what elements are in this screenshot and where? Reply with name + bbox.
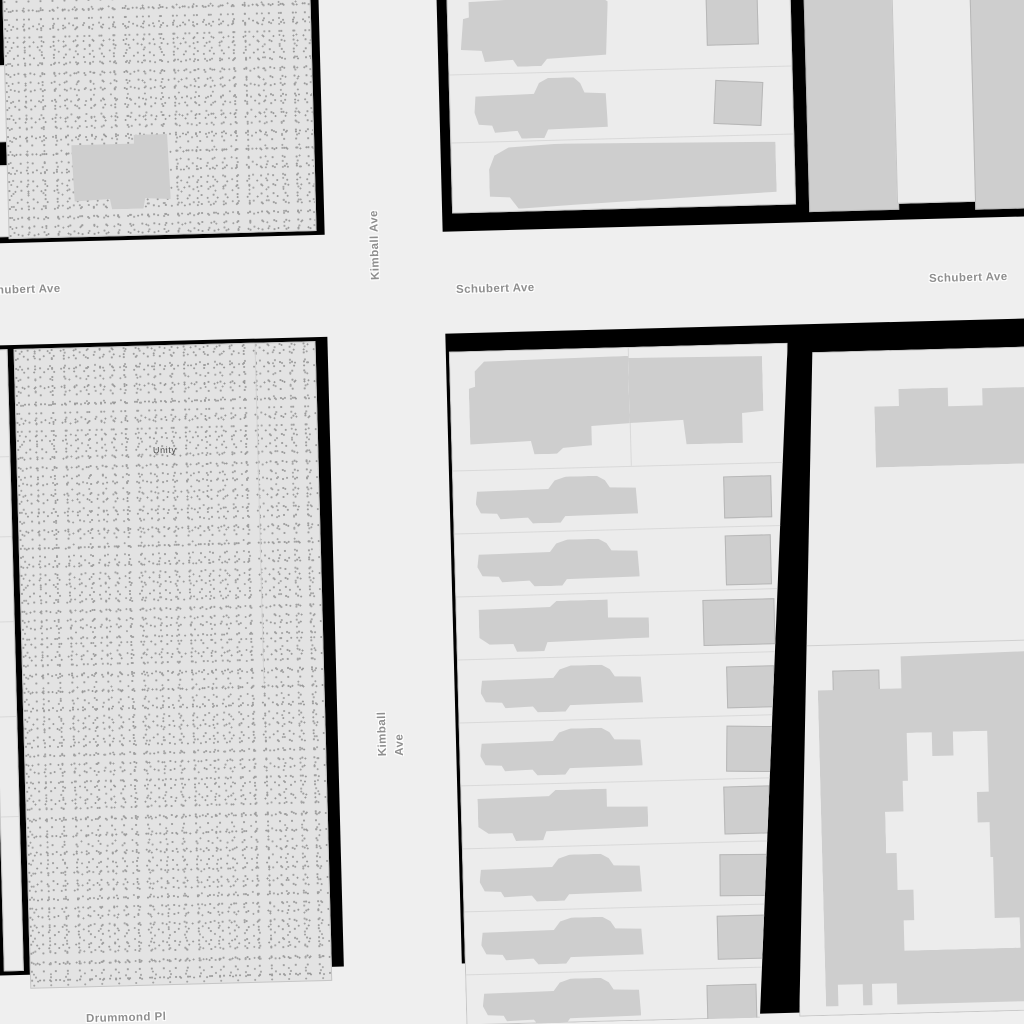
- building: [725, 534, 772, 585]
- map-geometry-layer: [0, 0, 1024, 1024]
- parcel-line: [0, 536, 11, 537]
- building: [482, 977, 641, 1024]
- building: [723, 785, 770, 834]
- building: [706, 0, 759, 46]
- building: [480, 664, 643, 714]
- building: [874, 383, 1024, 467]
- parcel-line: [0, 716, 16, 717]
- building: [628, 354, 764, 445]
- building: [802, 0, 899, 212]
- parcel-line: [255, 344, 265, 684]
- lot-row: [456, 588, 795, 661]
- building: [702, 598, 775, 646]
- lot-line: [791, 637, 1024, 647]
- building: [479, 853, 642, 903]
- parcel: [890, 0, 977, 204]
- lot-line: [451, 134, 793, 144]
- lot-row: [463, 840, 802, 913]
- map-viewport[interactable]: Schubert Ave Schubert Ave Schubert Ave K…: [0, 0, 1024, 1024]
- building: [460, 0, 610, 68]
- building: [477, 538, 640, 588]
- block-bottom-right: [782, 344, 1024, 1017]
- building: [477, 788, 648, 842]
- lot-line: [450, 66, 792, 76]
- building: [71, 134, 171, 211]
- block-bottom-middle: [449, 343, 806, 1024]
- building: [723, 475, 772, 518]
- building: [726, 726, 774, 772]
- lot-row: [466, 966, 805, 1024]
- building: [468, 356, 630, 456]
- building: [726, 665, 775, 708]
- building: [968, 0, 1024, 210]
- lot-row: [461, 777, 800, 850]
- parcel-unity: [14, 341, 333, 989]
- building: [474, 76, 609, 139]
- lot-row: [464, 903, 803, 976]
- parcel-line: [0, 621, 14, 622]
- lot-row: [453, 462, 792, 535]
- parcel-line: [1, 816, 19, 817]
- road-kimball-ave: [316, 0, 465, 1024]
- block-top-middle: [445, 0, 796, 213]
- building: [488, 138, 777, 209]
- building: [719, 854, 767, 896]
- building: [481, 916, 644, 966]
- building: [478, 598, 649, 652]
- building: [717, 915, 766, 960]
- building: [480, 727, 643, 777]
- building: [475, 475, 638, 525]
- parcel-cemetery-north: [1, 0, 316, 239]
- lot-row: [458, 651, 797, 724]
- lot-row: [455, 525, 794, 598]
- building: [713, 80, 763, 126]
- lot-row: [459, 714, 798, 787]
- parcel-line: [0, 456, 9, 457]
